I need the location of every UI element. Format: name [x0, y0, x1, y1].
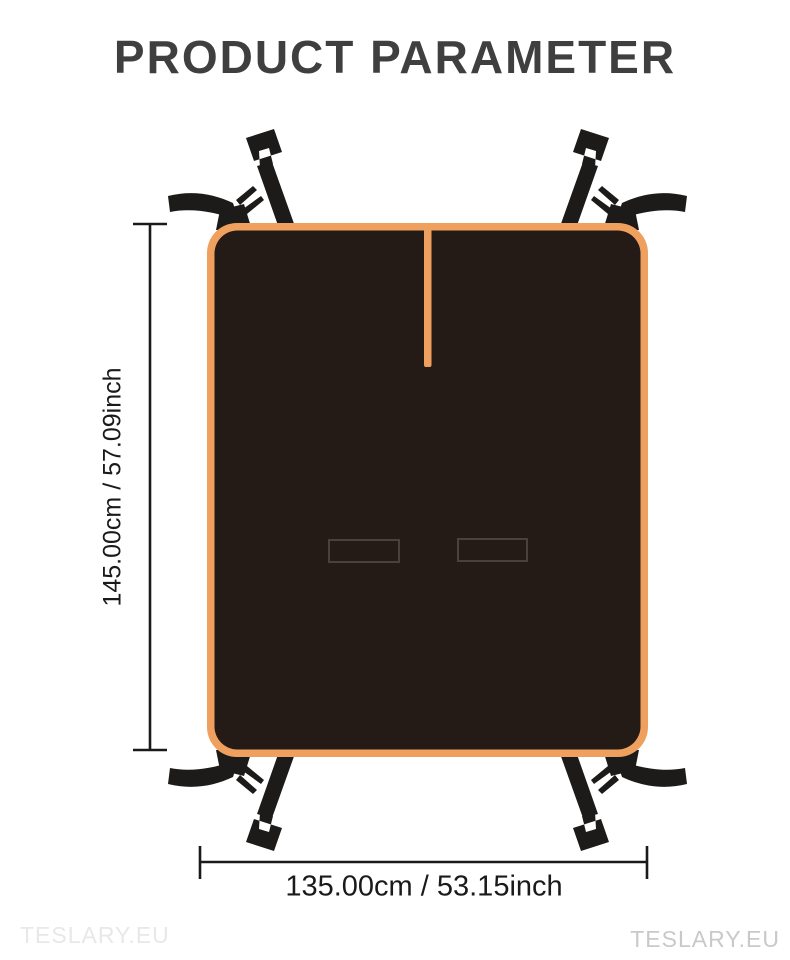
height-dimension-line [133, 224, 167, 750]
strap-top-right [558, 129, 687, 234]
watermark-left: TESLARY.EU [20, 922, 170, 949]
watermark-right: TESLARY.EU [630, 926, 780, 953]
center-slit [424, 226, 432, 367]
width-label: 135.00cm / 53.15inch [285, 871, 562, 904]
strap-bottom-left [168, 746, 297, 851]
product-parameter-page: PRODUCT PARAMETER 145.00 [0, 0, 790, 960]
height-label: 145.00cm / 57.09inch [99, 367, 128, 606]
strap-bottom-right [558, 746, 687, 851]
strap-top-left [168, 129, 297, 234]
